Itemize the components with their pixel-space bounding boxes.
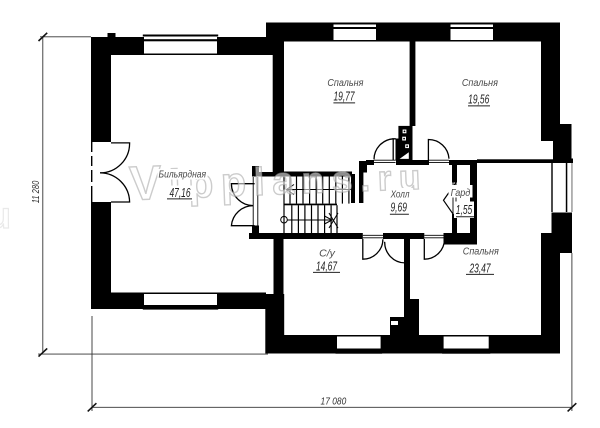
svg-text:19,77: 19,77 bbox=[333, 90, 355, 104]
svg-text:11 280: 11 280 bbox=[30, 181, 41, 204]
svg-text:Спальня: Спальня bbox=[463, 246, 500, 258]
svg-text:Бильярдная: Бильярдная bbox=[159, 169, 207, 180]
svg-text:ru: ru bbox=[0, 195, 11, 236]
svg-text:С/у: С/у bbox=[319, 247, 336, 259]
svg-text:Спальня: Спальня bbox=[327, 78, 364, 90]
svg-text:Гард: Гард bbox=[451, 187, 471, 199]
svg-text:1,55: 1,55 bbox=[456, 203, 473, 217]
svg-text:17 080: 17 080 bbox=[321, 395, 347, 407]
svg-text:9,69: 9,69 bbox=[390, 201, 406, 215]
svg-text:19,56: 19,56 bbox=[468, 93, 490, 107]
svg-text:Холл: Холл bbox=[390, 188, 410, 200]
svg-text:14,67: 14,67 bbox=[316, 260, 338, 274]
svg-text:Спальня: Спальня bbox=[462, 78, 499, 90]
